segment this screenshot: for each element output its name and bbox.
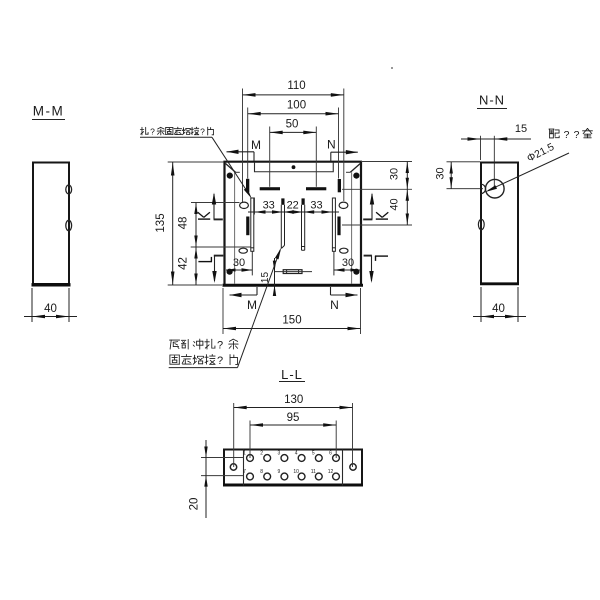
svg-text:N: N — [330, 298, 339, 312]
svg-text:12: 12 — [328, 469, 334, 475]
svg-text:30: 30 — [389, 168, 401, 180]
svg-text:95: 95 — [287, 412, 300, 424]
svg-text:?: ? — [564, 129, 570, 141]
svg-text:9: 9 — [278, 469, 281, 475]
svg-text:?: ? — [200, 126, 205, 136]
svg-text:30: 30 — [342, 257, 354, 269]
svg-text:33: 33 — [310, 200, 322, 212]
svg-text:2: 2 — [260, 451, 263, 457]
svg-text:7: 7 — [243, 469, 246, 475]
svg-text:30: 30 — [233, 257, 245, 269]
svg-text:33: 33 — [263, 200, 275, 212]
svg-text:40: 40 — [389, 198, 401, 210]
svg-text:?: ? — [150, 126, 155, 136]
svg-text:3: 3 — [278, 451, 281, 457]
svg-text:130: 130 — [284, 394, 303, 406]
svg-text:5: 5 — [312, 451, 315, 457]
svg-text:150: 150 — [282, 315, 301, 327]
svg-text:50: 50 — [286, 119, 299, 131]
svg-text:30: 30 — [435, 167, 447, 179]
svg-text:15: 15 — [515, 123, 527, 135]
svg-text:11: 11 — [311, 469, 316, 475]
svg-text:4: 4 — [295, 451, 298, 457]
svg-text:40: 40 — [44, 303, 57, 315]
svg-text:1: 1 — [243, 451, 246, 457]
svg-text:10: 10 — [293, 469, 299, 475]
svg-text:L-L: L-L — [281, 367, 303, 382]
svg-text:48: 48 — [178, 217, 190, 230]
svg-text:100: 100 — [287, 100, 306, 112]
svg-text:6: 6 — [329, 451, 332, 457]
svg-text:22: 22 — [287, 200, 299, 212]
svg-text:N-N: N-N — [479, 93, 505, 108]
svg-text:110: 110 — [287, 80, 305, 92]
svg-text:42: 42 — [178, 257, 190, 270]
svg-text:?: ? — [217, 340, 223, 352]
svg-text:?: ? — [574, 129, 580, 141]
svg-text:?: ? — [217, 355, 223, 367]
svg-text:15: 15 — [260, 272, 271, 284]
svg-text:M-M: M-M — [33, 104, 65, 119]
svg-text:N: N — [327, 138, 336, 152]
svg-text:M: M — [251, 138, 261, 152]
svg-text:40: 40 — [492, 303, 505, 315]
svg-text:135: 135 — [155, 213, 167, 232]
svg-text:8: 8 — [260, 469, 263, 475]
svg-text:M: M — [247, 298, 257, 312]
svg-text:20: 20 — [189, 498, 201, 511]
